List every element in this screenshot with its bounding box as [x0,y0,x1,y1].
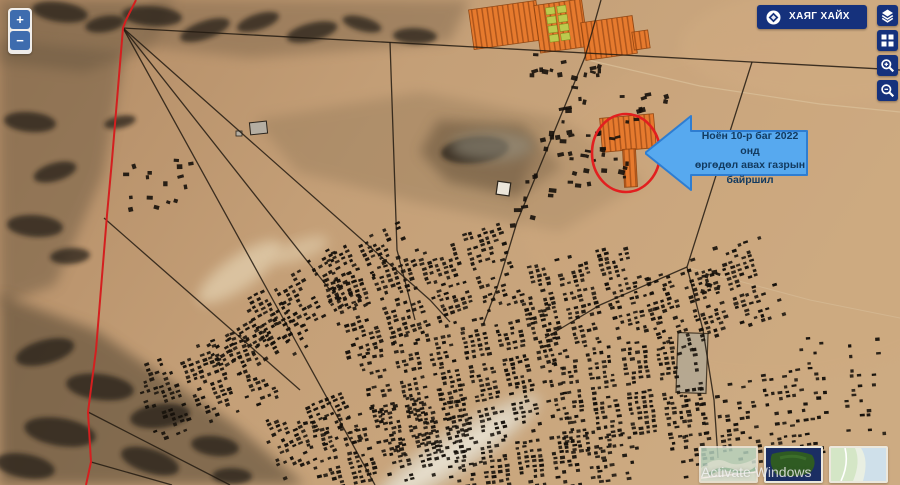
expand-icon [880,33,895,48]
basemap-thumbnail-satellite[interactable] [764,446,823,483]
basemap-layers-button[interactable] [877,5,898,26]
map-tool-column [877,5,898,101]
address-search-label: ХАЯГ ХАЙХ [789,5,850,29]
magnifier-minus-icon [880,83,895,98]
satellite-basemap [0,0,900,485]
basemap-thumbnail-streets[interactable] [829,446,888,483]
topographic-map-preview [701,448,756,481]
streets-map-preview [831,448,886,481]
map-canvas[interactable]: Ноён 10-р баг 2022 онд өргөдөл авах газр… [0,0,900,485]
navigate-diamond-icon [766,10,781,25]
layers-icon [880,8,895,23]
zoom-extent-button[interactable] [877,30,898,51]
zoom-out-box-button[interactable] [877,80,898,101]
zoom-in-box-button[interactable] [877,55,898,76]
zoom-out-button[interactable]: − [10,31,30,50]
basemap-thumbnail-topographic[interactable] [699,446,758,483]
zoom-in-button[interactable]: + [10,10,30,29]
basemap-gallery [699,446,888,483]
address-search-button[interactable]: ХАЯГ ХАЙХ [757,5,867,29]
map-zoom-control: + − [8,8,32,54]
satellite-map-preview [766,448,821,481]
magnifier-plus-icon [880,58,895,73]
